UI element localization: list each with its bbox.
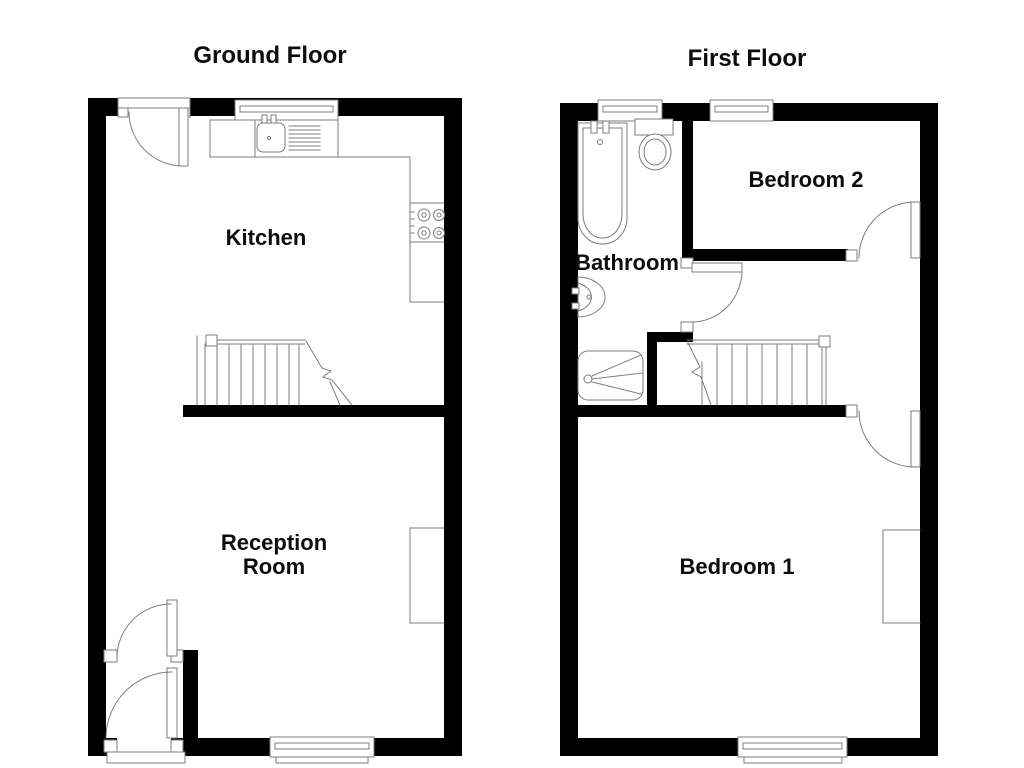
stair-break-line xyxy=(688,343,711,405)
ground-floor-plan xyxy=(88,98,462,763)
drainer-lines xyxy=(289,126,320,150)
stair-break-line xyxy=(306,341,352,405)
ground-staircase xyxy=(197,335,352,405)
entrance-door-swing xyxy=(129,112,183,166)
chimney-breast-first xyxy=(883,530,920,623)
entrance-door xyxy=(118,98,190,166)
bathroom-door-leaf xyxy=(692,263,742,272)
inner-door-swing xyxy=(117,604,171,658)
front-door-threshold xyxy=(107,752,185,763)
bedroom1-label: Bedroom 1 xyxy=(680,555,795,579)
bedroom2-door-leaf xyxy=(911,202,920,258)
bathroom-label: Bathroom xyxy=(575,251,679,275)
bedroom1-door-leaf xyxy=(911,411,920,467)
bedroom1-door-swing xyxy=(859,411,915,467)
wall-end-caps xyxy=(681,250,857,417)
bath xyxy=(578,121,627,244)
front-door xyxy=(104,668,185,763)
stair-treads xyxy=(205,344,299,405)
bedroom2-door xyxy=(859,202,920,258)
stair-treads xyxy=(702,344,822,405)
reception-room-label: Reception Room xyxy=(221,531,327,579)
first-divider-wall xyxy=(560,405,848,417)
toilet xyxy=(635,119,673,170)
shower xyxy=(578,351,643,400)
chimney-breast xyxy=(410,528,444,623)
inner-door-leaf xyxy=(167,600,177,656)
ground-walls xyxy=(88,98,462,756)
first-floor-plan xyxy=(560,100,938,763)
ground-divider-wall xyxy=(183,405,462,417)
first-staircase xyxy=(687,336,830,405)
bedroom1-window xyxy=(738,737,847,763)
reception-window xyxy=(270,737,374,763)
cistern xyxy=(635,119,673,135)
vestibule-inner-door xyxy=(104,600,183,662)
vestibule-wall xyxy=(183,650,198,738)
reception-label-line2: Room xyxy=(221,555,327,579)
bathroom-door xyxy=(692,263,742,322)
front-door-leaf xyxy=(167,668,177,738)
bedroom2-door-swing xyxy=(859,202,915,258)
shower-wall-v xyxy=(647,332,657,417)
bathroom-door-swing xyxy=(692,270,742,322)
sink-bowl xyxy=(257,123,285,152)
bedroom2-wall xyxy=(688,249,848,261)
kitchen-window xyxy=(235,100,338,120)
bedroom2-label: Bedroom 2 xyxy=(749,168,864,192)
worktop xyxy=(338,157,444,302)
floorplan-drawing xyxy=(0,0,1024,768)
newel-post xyxy=(819,336,830,347)
entrance-door-leaf xyxy=(179,108,188,166)
newel-post xyxy=(206,335,217,346)
hob xyxy=(410,203,445,242)
floorplan-page: Ground Floor First Floor Kitchen Recepti… xyxy=(0,0,1024,768)
bathroom-wall xyxy=(682,121,693,258)
reception-label-line1: Reception xyxy=(221,531,327,555)
sink-drainer-unit xyxy=(210,115,338,157)
front-door-swing xyxy=(106,672,172,738)
ground-floor-title: Ground Floor xyxy=(193,44,346,68)
first-floor-title: First Floor xyxy=(688,47,807,71)
kitchen-label: Kitchen xyxy=(226,226,307,250)
bedroom1-door xyxy=(859,411,920,467)
